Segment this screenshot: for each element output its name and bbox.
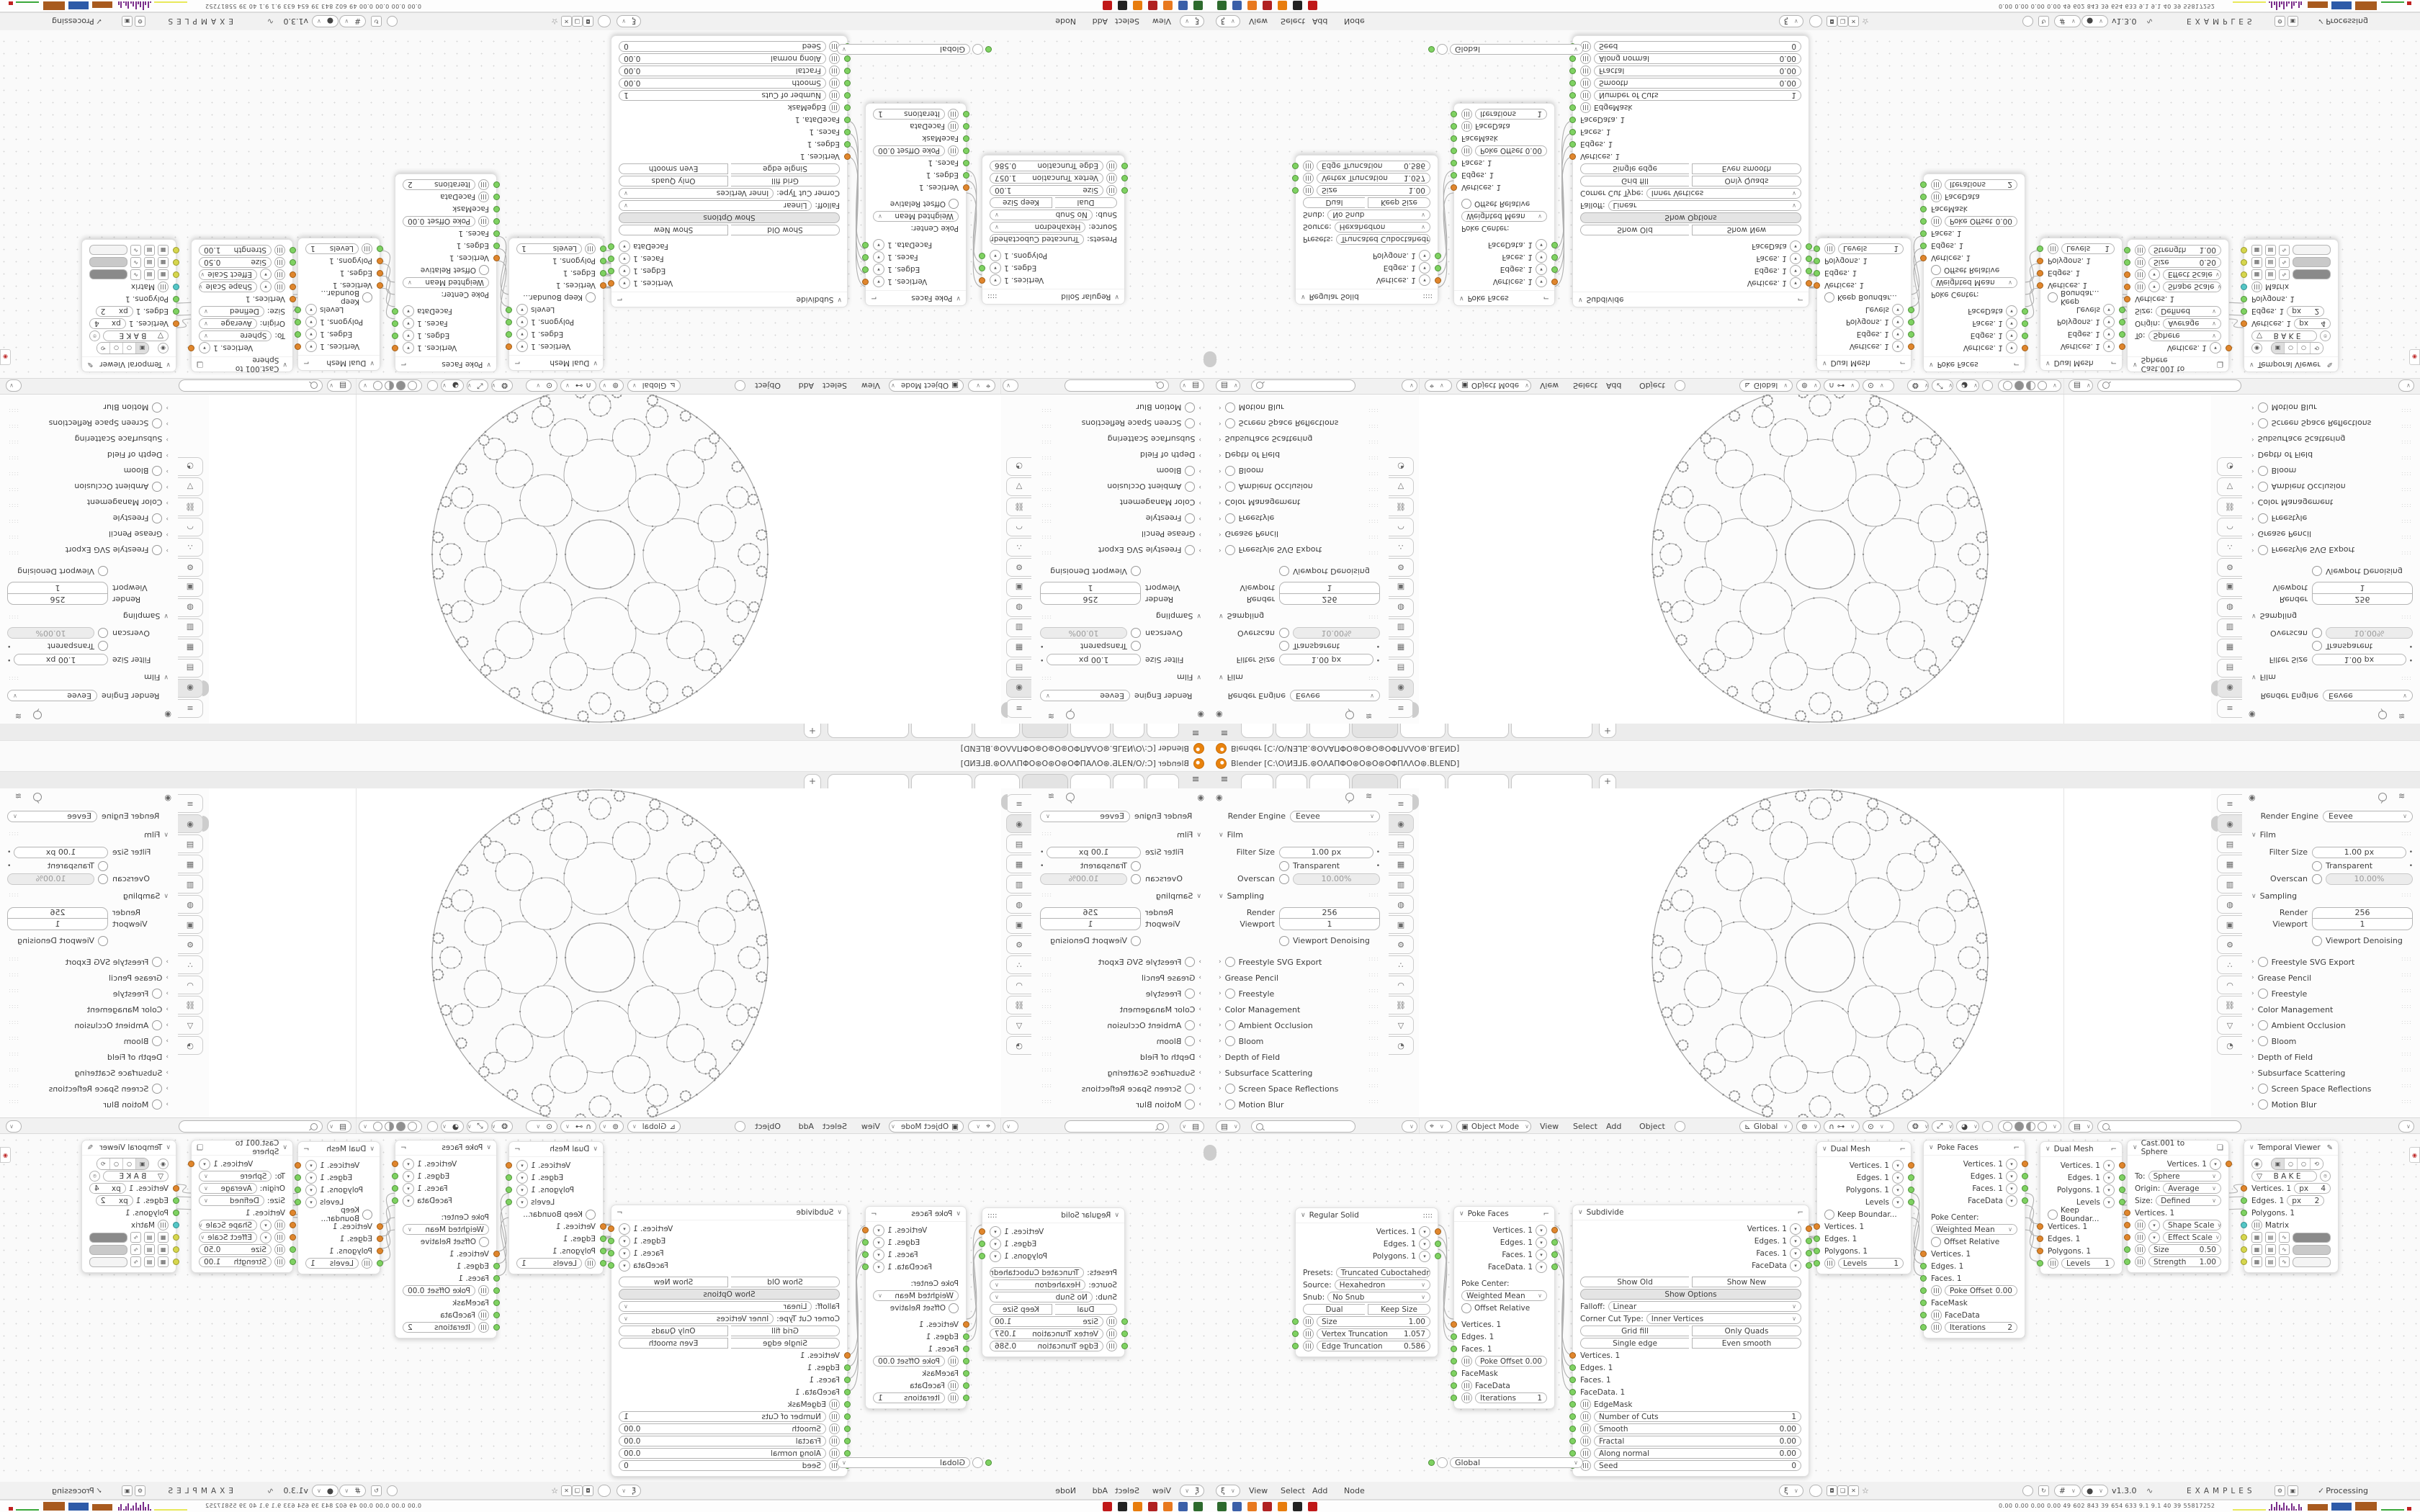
collapse-caret-icon[interactable]: ∨ (1301, 293, 1306, 300)
socket-options-icon[interactable] (1461, 145, 1472, 156)
node-toggle-button[interactable]: Keep Size (990, 197, 1052, 208)
socket-yellow[interactable] (173, 259, 179, 266)
socket-green[interactable] (1435, 1241, 1441, 1247)
value-slider[interactable]: Fractal0.00 (619, 1436, 826, 1446)
node-dual-mesh[interactable]: ∨Dual Mesh⌐Vertices. 1▾Edges. 1▾Polygons… (297, 238, 380, 371)
socket-options-icon[interactable] (274, 1244, 285, 1255)
eye-icon[interactable]: ◉ (158, 1158, 169, 1169)
node-toggle-button[interactable]: Even smooth (619, 1338, 728, 1349)
props-section-screen-space-reflections[interactable]: ›Screen Space Reflections (1082, 1082, 1201, 1095)
socket-options-icon[interactable] (829, 90, 840, 101)
socket-green[interactable] (1551, 1251, 1558, 1258)
node-select[interactable]: Shape Scale∨ (199, 282, 257, 292)
props-search-input[interactable] (179, 379, 323, 392)
section-checkbox[interactable] (152, 482, 162, 492)
properties-tab-scene-icon[interactable]: ▥ (1006, 618, 1031, 637)
properties-tab-material-icon[interactable]: ◔ (1006, 1036, 1031, 1055)
properties-tab-world-icon[interactable]: ◍ (1006, 895, 1031, 914)
socket-menu-icon[interactable]: ▾ (873, 1237, 884, 1248)
socket-menu-icon[interactable]: ▾ (516, 1197, 528, 1208)
px-value-field[interactable]: px2 (2287, 306, 2324, 317)
socket-green[interactable] (1920, 218, 1927, 225)
props-section-motion-blur[interactable]: ›Motion Blur (2251, 401, 2317, 414)
node-select[interactable]: Sphere∨ (199, 1171, 272, 1182)
properties-tab-view-layer-icon[interactable]: ▦ (178, 639, 203, 657)
node-toggle-button[interactable]: Show Options (619, 1289, 840, 1300)
properties-editor-type-button[interactable]: ▤∨ (1180, 1120, 1204, 1133)
properties-tab-scene-icon[interactable]: ▥ (178, 875, 203, 894)
socket-orange[interactable] (377, 270, 383, 276)
copy-icon[interactable]: ❏ (1837, 16, 1848, 27)
socket-green[interactable] (2119, 307, 2125, 313)
socket-menu-icon[interactable]: ▾ (516, 317, 528, 328)
color-swatch[interactable] (2293, 1233, 2331, 1243)
socket-menu-icon[interactable]: ▾ (403, 1171, 414, 1182)
socket-options-icon[interactable] (1106, 173, 1117, 184)
socket-green[interactable] (2022, 320, 2028, 327)
properties-tab-tool-icon[interactable]: ≡ (1006, 794, 1031, 813)
animate-dot-icon[interactable]: • (1376, 657, 1380, 664)
props-section-freestyle-svg-export[interactable]: ›Freestyle SVG Export (1219, 544, 1322, 557)
transparent-checkbox[interactable] (2312, 642, 2322, 652)
socket-options-icon[interactable] (1931, 192, 1942, 202)
socket-green[interactable] (2022, 1185, 2028, 1192)
node-select[interactable]: No Snub∨ (990, 210, 1093, 220)
solid-shading-icon[interactable] (2015, 381, 2024, 390)
socket-options-icon[interactable] (948, 145, 959, 156)
node-toggle-button[interactable]: Even smooth (619, 163, 728, 174)
properties-tab-modifier-icon[interactable]: ⚙ (1006, 935, 1031, 954)
socket-green[interactable] (2124, 1259, 2130, 1265)
value-slider[interactable]: Iterations1 (1475, 1392, 1547, 1403)
socket-yellow[interactable] (173, 1234, 179, 1241)
node-select[interactable]: Weighted Mean∨ (1461, 211, 1547, 222)
animate-dot-icon[interactable]: • (7, 849, 11, 856)
props-search-input[interactable] (1065, 1120, 1169, 1133)
node-toggle-button[interactable]: Show New (1692, 225, 1801, 235)
properties-tab-view-layer-icon[interactable]: ▦ (1006, 855, 1031, 873)
properties-tab-object-data-icon[interactable]: ▽ (178, 1016, 203, 1035)
props-section-depth-of-field[interactable]: ›Depth of Field (1140, 449, 1201, 462)
node-select[interactable]: Sphere∨ (2148, 330, 2221, 341)
node-menu-add[interactable]: Add (1091, 1486, 1109, 1495)
value-slider[interactable]: Smooth0.00 (1594, 78, 1801, 89)
collapse-caret-icon[interactable]: ∨ (2133, 361, 2138, 368)
tree-type-button[interactable]: ξ∨ (1779, 1485, 1803, 1497)
node-toggle-button[interactable]: Show Old (1580, 225, 1689, 235)
socket-green[interactable] (493, 1263, 500, 1269)
node-select[interactable]: Shape Scale∨ (2163, 1220, 2221, 1230)
viewer-option-icon[interactable]: ∿ (130, 1244, 141, 1255)
props-section-depth-of-field[interactable]: ›Depth of Field (1140, 1050, 1201, 1063)
node-select[interactable]: Weighted Mean∨ (403, 1224, 489, 1235)
socket-green[interactable] (963, 1333, 969, 1340)
props-section-ambient-occlusion[interactable]: ›Ambient Occlusion (1219, 480, 1313, 493)
floppy-icon[interactable] (1178, 1502, 1188, 1511)
px-value-field[interactable]: px4 (2294, 318, 2331, 329)
section-checkbox[interactable] (1185, 402, 1195, 413)
node-editor-type-button[interactable]: ξ∨ (1216, 15, 1240, 27)
viewer-option-icon[interactable]: ▦ (158, 245, 169, 256)
value-slider[interactable]: Fractal0.00 (619, 66, 826, 76)
socket-green[interactable] (608, 1238, 614, 1244)
properties-editor-type-button[interactable]: ▤∨ (327, 379, 351, 392)
node-poke-faces[interactable]: ∨Poke Faces⌐Vertices. 1▾Edges. 1▾Faces. … (865, 103, 967, 306)
socket-green[interactable] (1920, 1263, 1927, 1269)
collapse-caret-icon[interactable]: ∨ (282, 361, 287, 368)
node-dual-mesh[interactable]: ∨Dual Mesh⌐Vertices. 1▾Edges. 1▾Polygons… (1816, 238, 1912, 371)
node-temporal-viewer[interactable]: ∨Temporal Viewer✎◉▣○○⟲▽B A K E⌾Vertices.… (2244, 239, 2339, 372)
properties-tab-output-icon[interactable]: ▤ (2217, 834, 2242, 853)
properties-tab-object-data-icon[interactable]: ▽ (1006, 1016, 1031, 1035)
workspace-tab[interactable] (1241, 724, 1273, 738)
socket-green[interactable] (963, 111, 969, 117)
socket-yellow[interactable] (2241, 1259, 2247, 1265)
socket-green[interactable] (1569, 129, 1576, 135)
properties-tab-tool-icon[interactable]: ≡ (2217, 794, 2242, 813)
socket-options-icon[interactable] (158, 282, 169, 292)
section-checkbox[interactable] (2258, 513, 2268, 523)
socket-menu-icon[interactable]: ▾ (2148, 269, 2160, 281)
system-app-icon[interactable] (1103, 1502, 1112, 1511)
properties-tab-object-data-icon[interactable]: ▽ (2217, 1016, 2242, 1035)
properties-tab-world-icon[interactable]: ◍ (1006, 598, 1031, 617)
node-editor[interactable]: ∨Regular Solid::::Vertices. 1▾Edges. 1▾P… (1210, 1134, 2420, 1482)
properties-tab-particles-icon[interactable]: ∴ (2217, 538, 2242, 557)
socket-orange[interactable] (2037, 270, 2043, 276)
props-section-depth-of-field[interactable]: ›Depth of Field (2251, 1050, 2313, 1063)
socket-orange[interactable] (1806, 280, 1812, 287)
socket-options-icon[interactable] (1461, 1356, 1472, 1367)
socket-orange[interactable] (2119, 1162, 2125, 1169)
properties-tab-scene-icon[interactable]: ▥ (2217, 618, 2242, 637)
socket-options-icon[interactable] (1303, 1341, 1314, 1351)
socket-options-icon[interactable] (274, 269, 285, 280)
value-slider[interactable]: Levels1 (1838, 243, 1904, 254)
props-section-motion-blur[interactable]: ›Motion Blur (2251, 1098, 2317, 1111)
node-select[interactable]: Sphere∨ (199, 330, 272, 341)
socket-menu-icon[interactable]: ▾ (2103, 1160, 2115, 1171)
node-checkbox[interactable] (362, 1210, 372, 1220)
socket-orange[interactable] (392, 345, 398, 351)
socket-orange[interactable] (2037, 1223, 2043, 1230)
socket-green[interactable] (844, 1389, 851, 1395)
props-options-button[interactable]: ∨ (6, 1120, 22, 1133)
collapse-caret-icon[interactable]: ∨ (1929, 361, 1934, 368)
socket-green[interactable] (2119, 1174, 2125, 1181)
value-slider[interactable]: Seed0 (619, 41, 826, 52)
section-checkbox[interactable] (152, 957, 162, 967)
socket-green[interactable] (1551, 1239, 1558, 1246)
node-checkbox[interactable] (1931, 266, 1941, 276)
socket-menu-icon[interactable]: ▾ (1536, 1261, 1547, 1273)
mode-select[interactable]: ▣Object Mode∨ (1456, 379, 1531, 392)
socket-green[interactable] (1451, 172, 1457, 179)
socket-green[interactable] (1806, 1262, 1812, 1269)
sidebar-tab-icon[interactable]: ◉ (0, 1147, 11, 1163)
props-section-grease-pencil[interactable]: ›Grease Pencil (2251, 971, 2311, 984)
viewport-denoising-checkbox[interactable] (1131, 567, 1141, 577)
socket-menu-icon[interactable]: ▾ (260, 269, 272, 281)
props-section-ambient-occlusion[interactable]: ›Ambient Occlusion (1107, 480, 1201, 493)
overscan-field[interactable]: 10.00% (1040, 873, 1127, 885)
overscan-field[interactable]: 10.00% (1293, 873, 1380, 885)
socket-green[interactable] (1920, 181, 1927, 188)
workspace-tab[interactable] (1511, 774, 1592, 788)
props-section-screen-space-reflections[interactable]: ›Screen Space Reflections (2251, 417, 2371, 430)
section-checkbox[interactable] (1185, 1020, 1195, 1030)
collapse-caret-icon[interactable]: ∨ (1578, 1209, 1583, 1216)
transparent-checkbox[interactable] (1279, 642, 1289, 652)
section-checkbox[interactable] (2258, 418, 2268, 428)
socket-green[interactable] (1451, 1346, 1457, 1352)
socket-options-icon[interactable] (274, 1232, 285, 1243)
props-section-freestyle-svg-export[interactable]: ›Freestyle SVG Export (1098, 955, 1201, 968)
props-section-color-management[interactable]: ›Color Management (87, 496, 169, 509)
media-app-icon[interactable] (1263, 1, 1272, 10)
node-regular-solid[interactable]: ∨Regular Solid::::Vertices. 1▾Edges. 1▾P… (982, 1207, 1125, 1357)
socket-green[interactable] (1292, 163, 1299, 169)
socket-menu-icon[interactable]: ▾ (873, 276, 884, 288)
viewer-option-icon[interactable]: ▤ (2265, 245, 2276, 256)
socket-green[interactable] (862, 1239, 869, 1246)
workspace-tab[interactable] (911, 774, 972, 788)
section-checkbox[interactable] (1185, 1084, 1195, 1094)
socket-green[interactable] (1451, 148, 1457, 154)
section-checkbox[interactable] (1185, 482, 1195, 492)
copy-icon[interactable]: ❏ (572, 1485, 583, 1496)
section-checkbox[interactable] (152, 1036, 162, 1046)
socket-green[interactable] (1569, 1389, 1576, 1395)
node-select[interactable]: Hexahedron∨ (990, 1279, 1085, 1290)
overlays-button[interactable]: ⤢∨ (467, 379, 488, 392)
viewer-option-icon[interactable]: ∿ (130, 1256, 141, 1267)
socket-green[interactable] (2119, 1187, 2125, 1193)
show-gizmo-button[interactable]: ❂∨ (491, 379, 513, 392)
properties-tab-scene-icon[interactable]: ▥ (1389, 618, 1414, 637)
node-checkbox[interactable] (1824, 293, 1834, 303)
properties-tab-modifier-icon[interactable]: ⚙ (1006, 558, 1031, 577)
update-icon[interactable]: ↻ (371, 16, 382, 27)
viewer-option-icon[interactable]: ▤ (144, 1232, 155, 1243)
section-checkbox[interactable] (1225, 402, 1235, 413)
pivot-select[interactable]: ⊚∨ (1796, 1120, 1821, 1133)
xray-button[interactable]: ◕∨ (441, 379, 464, 392)
node-cast-001-to-sphere[interactable]: ∨Cast.001 to Sphere❏Vertices. 1▾To:Spher… (2127, 1140, 2229, 1273)
props-section-freestyle-svg-export[interactable]: ›Freestyle SVG Export (1098, 544, 1201, 557)
props-section-bloom[interactable]: ›Bloom (124, 464, 169, 477)
socket-options-icon[interactable] (2135, 1244, 2146, 1255)
properties-tab-constraints-icon[interactable]: ⛓ (178, 996, 203, 1014)
props-section-grease-pencil[interactable]: ›Grease Pencil (1219, 971, 1278, 984)
viewer-option-icon[interactable]: ∿ (2279, 1256, 2290, 1267)
socket-options-icon[interactable] (2135, 282, 2146, 292)
socket-menu-icon[interactable]: ▾ (619, 253, 630, 265)
socket-orange[interactable] (1569, 1352, 1576, 1359)
collapse-caret-icon[interactable]: ∨ (1929, 1144, 1934, 1151)
viewport-extra-button[interactable] (1982, 380, 1993, 391)
viewer-option-icon[interactable]: ▦ (2251, 1244, 2262, 1255)
node-menu-select[interactable]: Select (1279, 17, 1307, 26)
properties-tab-object-icon[interactable]: ▣ (2217, 915, 2242, 934)
node-toggle-button[interactable]: Dual (1055, 1304, 1117, 1315)
socket-orange[interactable] (173, 320, 179, 327)
socket-green[interactable] (1569, 1438, 1576, 1444)
socket-menu-icon[interactable]: ▾ (403, 1158, 414, 1170)
socket-orange[interactable] (979, 277, 985, 284)
socket-green[interactable] (1551, 266, 1558, 273)
properties-tab-object-data-icon[interactable]: ▽ (178, 477, 203, 496)
shade-toggle[interactable]: ●∨ (312, 15, 339, 27)
section-checkbox[interactable] (152, 513, 162, 523)
add-workspace-tab-button[interactable]: + (804, 724, 821, 738)
socket-options-icon[interactable] (829, 53, 840, 64)
properties-editor-type-button[interactable]: ▤∨ (327, 1120, 351, 1133)
socket-green[interactable] (295, 1199, 301, 1205)
inkscape-icon[interactable] (1118, 1502, 1127, 1511)
socket-green[interactable] (1451, 1333, 1457, 1340)
node-select[interactable]: Defined∨ (2156, 1195, 2221, 1206)
socket-menu-icon[interactable]: ▾ (2006, 306, 2017, 318)
value-slider[interactable]: Levels1 (305, 243, 359, 254)
socket-orange[interactable] (2124, 296, 2130, 302)
socket-orange[interactable] (506, 343, 512, 350)
socket-menu-icon[interactable]: ▾ (305, 1172, 317, 1184)
node-select[interactable]: Hexahedron∨ (1335, 222, 1430, 233)
section-checkbox[interactable] (152, 545, 162, 555)
viewport-menu-object[interactable]: Object (753, 1122, 782, 1131)
props-options-button[interactable]: ∨ (2398, 379, 2414, 392)
socket-green[interactable] (963, 148, 969, 154)
node-select[interactable]: Defined∨ (2156, 306, 2221, 317)
section-checkbox[interactable] (2258, 1036, 2268, 1046)
filter-icon[interactable]: ≋ (2398, 711, 2405, 721)
floppy-icon[interactable] (1232, 1, 1242, 10)
header-circle-button[interactable] (2022, 1485, 2033, 1496)
overscan-field[interactable]: 10.00% (7, 628, 94, 639)
properties-tab-world-icon[interactable]: ◍ (2217, 895, 2242, 914)
transparent-checkbox[interactable] (98, 642, 108, 652)
viewer-display-toggle[interactable]: ▣ (2272, 343, 2285, 354)
viewer-option-icon[interactable]: ▤ (2265, 269, 2276, 280)
animate-dot-icon[interactable]: • (1040, 863, 1044, 870)
region-handle[interactable] (2211, 816, 2218, 832)
bake-button[interactable]: ▽B A K E (2251, 1171, 2317, 1182)
viewer-extra-icon[interactable]: ⌾ (89, 330, 100, 341)
socket-green[interactable] (600, 246, 606, 252)
socket-options-icon[interactable] (1303, 161, 1314, 171)
socket-orange[interactable] (506, 1162, 512, 1169)
node-select[interactable]: Linear∨ (1608, 1301, 1801, 1312)
header-circle-button[interactable] (2022, 16, 2033, 27)
properties-tab-particles-icon[interactable]: ∴ (1006, 955, 1031, 974)
workspace-tab[interactable] (828, 774, 909, 788)
socket-green[interactable] (1569, 1401, 1576, 1408)
props-section-color-management[interactable]: ›Color Management (1120, 1003, 1201, 1016)
socket-green[interactable] (2022, 1197, 2028, 1204)
properties-tab-material-icon[interactable]: ◔ (1006, 457, 1031, 476)
socket-menu-icon[interactable]: ▾ (1419, 1226, 1430, 1238)
panel-icon[interactable]: ▣ (2287, 1485, 2298, 1496)
socket-cyan[interactable] (173, 1222, 179, 1228)
node-poke-faces[interactable]: ∨Poke Faces⌐Vertices. 1▾Edges. 1▾Faces. … (865, 1206, 967, 1409)
node-toggle-button[interactable]: Grid fill (731, 1326, 840, 1336)
grid-toggle[interactable]: #∨ (2054, 15, 2081, 27)
socket-cyan[interactable] (173, 284, 179, 290)
properties-tab-output-icon[interactable]: ▤ (1389, 659, 1414, 678)
add-workspace-tab-button[interactable]: + (1599, 724, 1616, 738)
viewport-3d[interactable] (1419, 788, 2063, 1117)
socket-options-icon[interactable] (2135, 245, 2146, 256)
socket-green[interactable] (862, 266, 869, 273)
socket-menu-icon[interactable]: ▾ (1419, 263, 1430, 274)
viewport-menu-select[interactable]: Select (821, 1122, 848, 1131)
socket-green[interactable] (493, 218, 500, 225)
props-section-grease-pencil[interactable]: ›Grease Pencil (1219, 528, 1278, 541)
viewer-option-icon[interactable]: ∿ (2279, 1232, 2290, 1243)
properties-tab-output-icon[interactable]: ▤ (1006, 659, 1031, 678)
settings-icon[interactable]: ⚙ (135, 16, 145, 27)
animate-dot-icon[interactable]: • (7, 657, 11, 664)
panel-icon[interactable]: ▣ (122, 16, 133, 27)
global-orientation-widget[interactable]: Global∨ (837, 44, 992, 55)
workspace-tab[interactable] (1309, 774, 1350, 788)
socket-options-icon[interactable] (1303, 1328, 1314, 1339)
color-swatch[interactable] (2293, 1257, 2331, 1267)
props-section-depth-of-field[interactable]: ›Depth of Field (1219, 449, 1280, 462)
properties-tab-output-icon[interactable]: ▤ (1389, 834, 1414, 853)
properties-tab-world-icon[interactable]: ◍ (178, 895, 203, 914)
node-menu-view[interactable]: View (1151, 17, 1173, 26)
fake-user-star-icon[interactable]: ☆ (551, 1486, 558, 1495)
socket-green[interactable] (1569, 1377, 1576, 1383)
socket-green[interactable] (295, 319, 301, 325)
collapse-caret-icon[interactable]: ∨ (1301, 1212, 1306, 1219)
socket-green[interactable] (844, 1413, 851, 1420)
socket-orange[interactable] (1551, 279, 1558, 285)
properties-tab-object-icon[interactable]: ▣ (1389, 578, 1414, 597)
pivot-select[interactable]: ⊚∨ (599, 379, 624, 392)
value-slider[interactable]: Edge Truncation0.586 (990, 1341, 1103, 1351)
socket-green[interactable] (844, 1401, 851, 1408)
node-select[interactable]: Effect Scale∨ (199, 269, 257, 280)
socket-cyan[interactable] (2241, 284, 2247, 290)
socket-options-icon[interactable] (1580, 78, 1591, 89)
color-swatch[interactable] (2293, 258, 2331, 268)
filter-size-field[interactable]: 1.00 px (1047, 847, 1141, 858)
props-section-grease-pencil[interactable]: ›Grease Pencil (109, 528, 169, 541)
socket-green[interactable] (963, 1346, 969, 1352)
socket-green[interactable] (2241, 308, 2247, 315)
node-poke-faces[interactable]: ∨Poke Faces⌐Vertices. 1▾Edges. 1▾Faces. … (1923, 1140, 2025, 1338)
socket-green[interactable] (290, 1259, 296, 1265)
value-slider[interactable]: Vertex Truncation1.057 (1317, 173, 1430, 184)
node-toggle-button[interactable]: Show New (619, 1277, 728, 1287)
socket-green[interactable] (963, 1395, 969, 1401)
socket-orange[interactable] (2226, 345, 2232, 351)
properties-tab-object-data-icon[interactable]: ▽ (2217, 477, 2242, 496)
xray-button[interactable]: ◕∨ (1956, 379, 1979, 392)
overlays-button[interactable]: ⤢∨ (1932, 379, 1953, 392)
shade-toggle[interactable]: ●∨ (2081, 1485, 2108, 1497)
socket-green[interactable] (506, 1199, 512, 1205)
socket-menu-icon[interactable]: ▾ (403, 1195, 414, 1207)
color-swatch[interactable] (89, 1245, 127, 1255)
socket-green[interactable] (844, 92, 851, 99)
node-select[interactable]: Shape Scale∨ (199, 1220, 257, 1230)
animate-dot-icon[interactable]: • (1376, 863, 1380, 870)
socket-orange[interactable] (1920, 255, 1927, 261)
